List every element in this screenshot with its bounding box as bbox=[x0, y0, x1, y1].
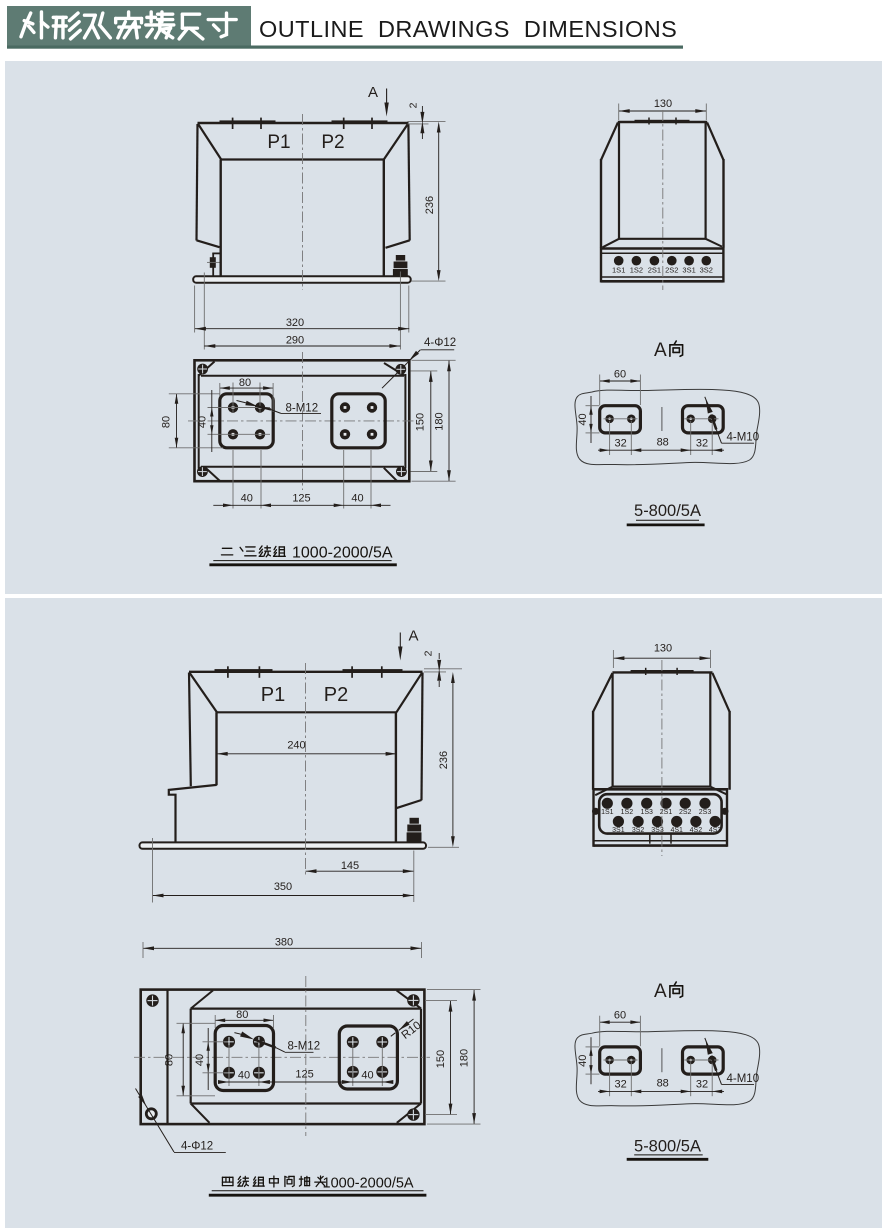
svg-text:P2: P2 bbox=[324, 684, 348, 706]
svg-text:240: 240 bbox=[287, 740, 305, 752]
svg-text:320: 320 bbox=[286, 317, 304, 329]
svg-text:1S2: 1S2 bbox=[630, 266, 643, 275]
svg-text:125: 125 bbox=[295, 1069, 313, 1081]
svg-text:A: A bbox=[368, 84, 378, 101]
svg-text:130: 130 bbox=[654, 643, 672, 655]
svg-text:A: A bbox=[654, 340, 667, 361]
svg-text:40: 40 bbox=[351, 493, 363, 505]
svg-text:8-M12: 8-M12 bbox=[286, 403, 319, 415]
svg-text:180: 180 bbox=[459, 1049, 471, 1067]
svg-text:236: 236 bbox=[438, 751, 450, 769]
svg-text:P2: P2 bbox=[321, 132, 344, 153]
svg-text:A: A bbox=[409, 628, 419, 645]
svg-text:P1: P1 bbox=[261, 684, 285, 706]
svg-text:8-M12: 8-M12 bbox=[288, 1041, 321, 1053]
svg-text:32: 32 bbox=[696, 438, 708, 450]
svg-text:4-M10: 4-M10 bbox=[727, 432, 760, 444]
svg-text:130: 130 bbox=[654, 98, 672, 110]
svg-text:380: 380 bbox=[275, 937, 293, 949]
svg-text:4S2: 4S2 bbox=[690, 827, 703, 834]
svg-text:OUTLINE DRAWINGS DIMENSIONS: OUTLINE DRAWINGS DIMENSIONS bbox=[259, 16, 677, 42]
svg-text:A: A bbox=[654, 981, 667, 1002]
svg-text:5-800/5A: 5-800/5A bbox=[634, 1138, 701, 1156]
svg-text:80: 80 bbox=[239, 377, 251, 389]
svg-text:2: 2 bbox=[423, 650, 435, 656]
svg-text:80: 80 bbox=[161, 416, 173, 428]
svg-text:1S1: 1S1 bbox=[601, 809, 614, 816]
svg-text:180: 180 bbox=[434, 412, 446, 430]
svg-text:3S2: 3S2 bbox=[632, 827, 645, 834]
svg-text:88: 88 bbox=[657, 437, 669, 449]
svg-text:350: 350 bbox=[274, 881, 292, 893]
svg-text:P1: P1 bbox=[267, 132, 290, 153]
svg-text:2S2: 2S2 bbox=[679, 809, 692, 816]
svg-text:40: 40 bbox=[196, 416, 208, 428]
svg-text:3S2: 3S2 bbox=[700, 266, 713, 275]
svg-text:40: 40 bbox=[577, 413, 589, 425]
svg-text:125: 125 bbox=[292, 493, 310, 505]
svg-text:2S3: 2S3 bbox=[699, 809, 712, 816]
svg-text:150: 150 bbox=[435, 1050, 447, 1068]
svg-text:145: 145 bbox=[341, 860, 359, 872]
svg-text:2: 2 bbox=[408, 102, 420, 108]
svg-text:1S2: 1S2 bbox=[621, 809, 634, 816]
svg-text:150: 150 bbox=[415, 413, 427, 431]
svg-text:60: 60 bbox=[614, 369, 626, 381]
svg-text:2S2: 2S2 bbox=[665, 266, 678, 275]
svg-text:80: 80 bbox=[236, 1009, 248, 1021]
svg-text:4S1: 4S1 bbox=[670, 827, 683, 834]
svg-text:80: 80 bbox=[164, 1054, 176, 1066]
svg-text:32: 32 bbox=[614, 438, 626, 450]
svg-text:40: 40 bbox=[194, 1054, 206, 1066]
svg-text:1000-2000/5A: 1000-2000/5A bbox=[292, 545, 393, 562]
svg-text:236: 236 bbox=[424, 196, 436, 214]
svg-text:1000-2000/5A: 1000-2000/5A bbox=[323, 1175, 414, 1191]
svg-text:290: 290 bbox=[286, 335, 304, 347]
svg-text:5-800/5A: 5-800/5A bbox=[634, 502, 701, 520]
svg-text:3S1: 3S1 bbox=[682, 266, 695, 275]
svg-text:4-Φ12: 4-Φ12 bbox=[181, 1141, 213, 1153]
svg-text:4-Φ12: 4-Φ12 bbox=[424, 337, 456, 349]
svg-text:40: 40 bbox=[238, 1070, 250, 1082]
svg-text:3S1: 3S1 bbox=[612, 827, 625, 834]
svg-text:2S1: 2S1 bbox=[648, 266, 661, 275]
svg-text:1S1: 1S1 bbox=[612, 266, 625, 275]
svg-text:40: 40 bbox=[241, 493, 253, 505]
svg-text:4S3: 4S3 bbox=[709, 827, 722, 834]
svg-text:40: 40 bbox=[361, 1070, 373, 1082]
svg-text:1S3: 1S3 bbox=[640, 809, 653, 816]
